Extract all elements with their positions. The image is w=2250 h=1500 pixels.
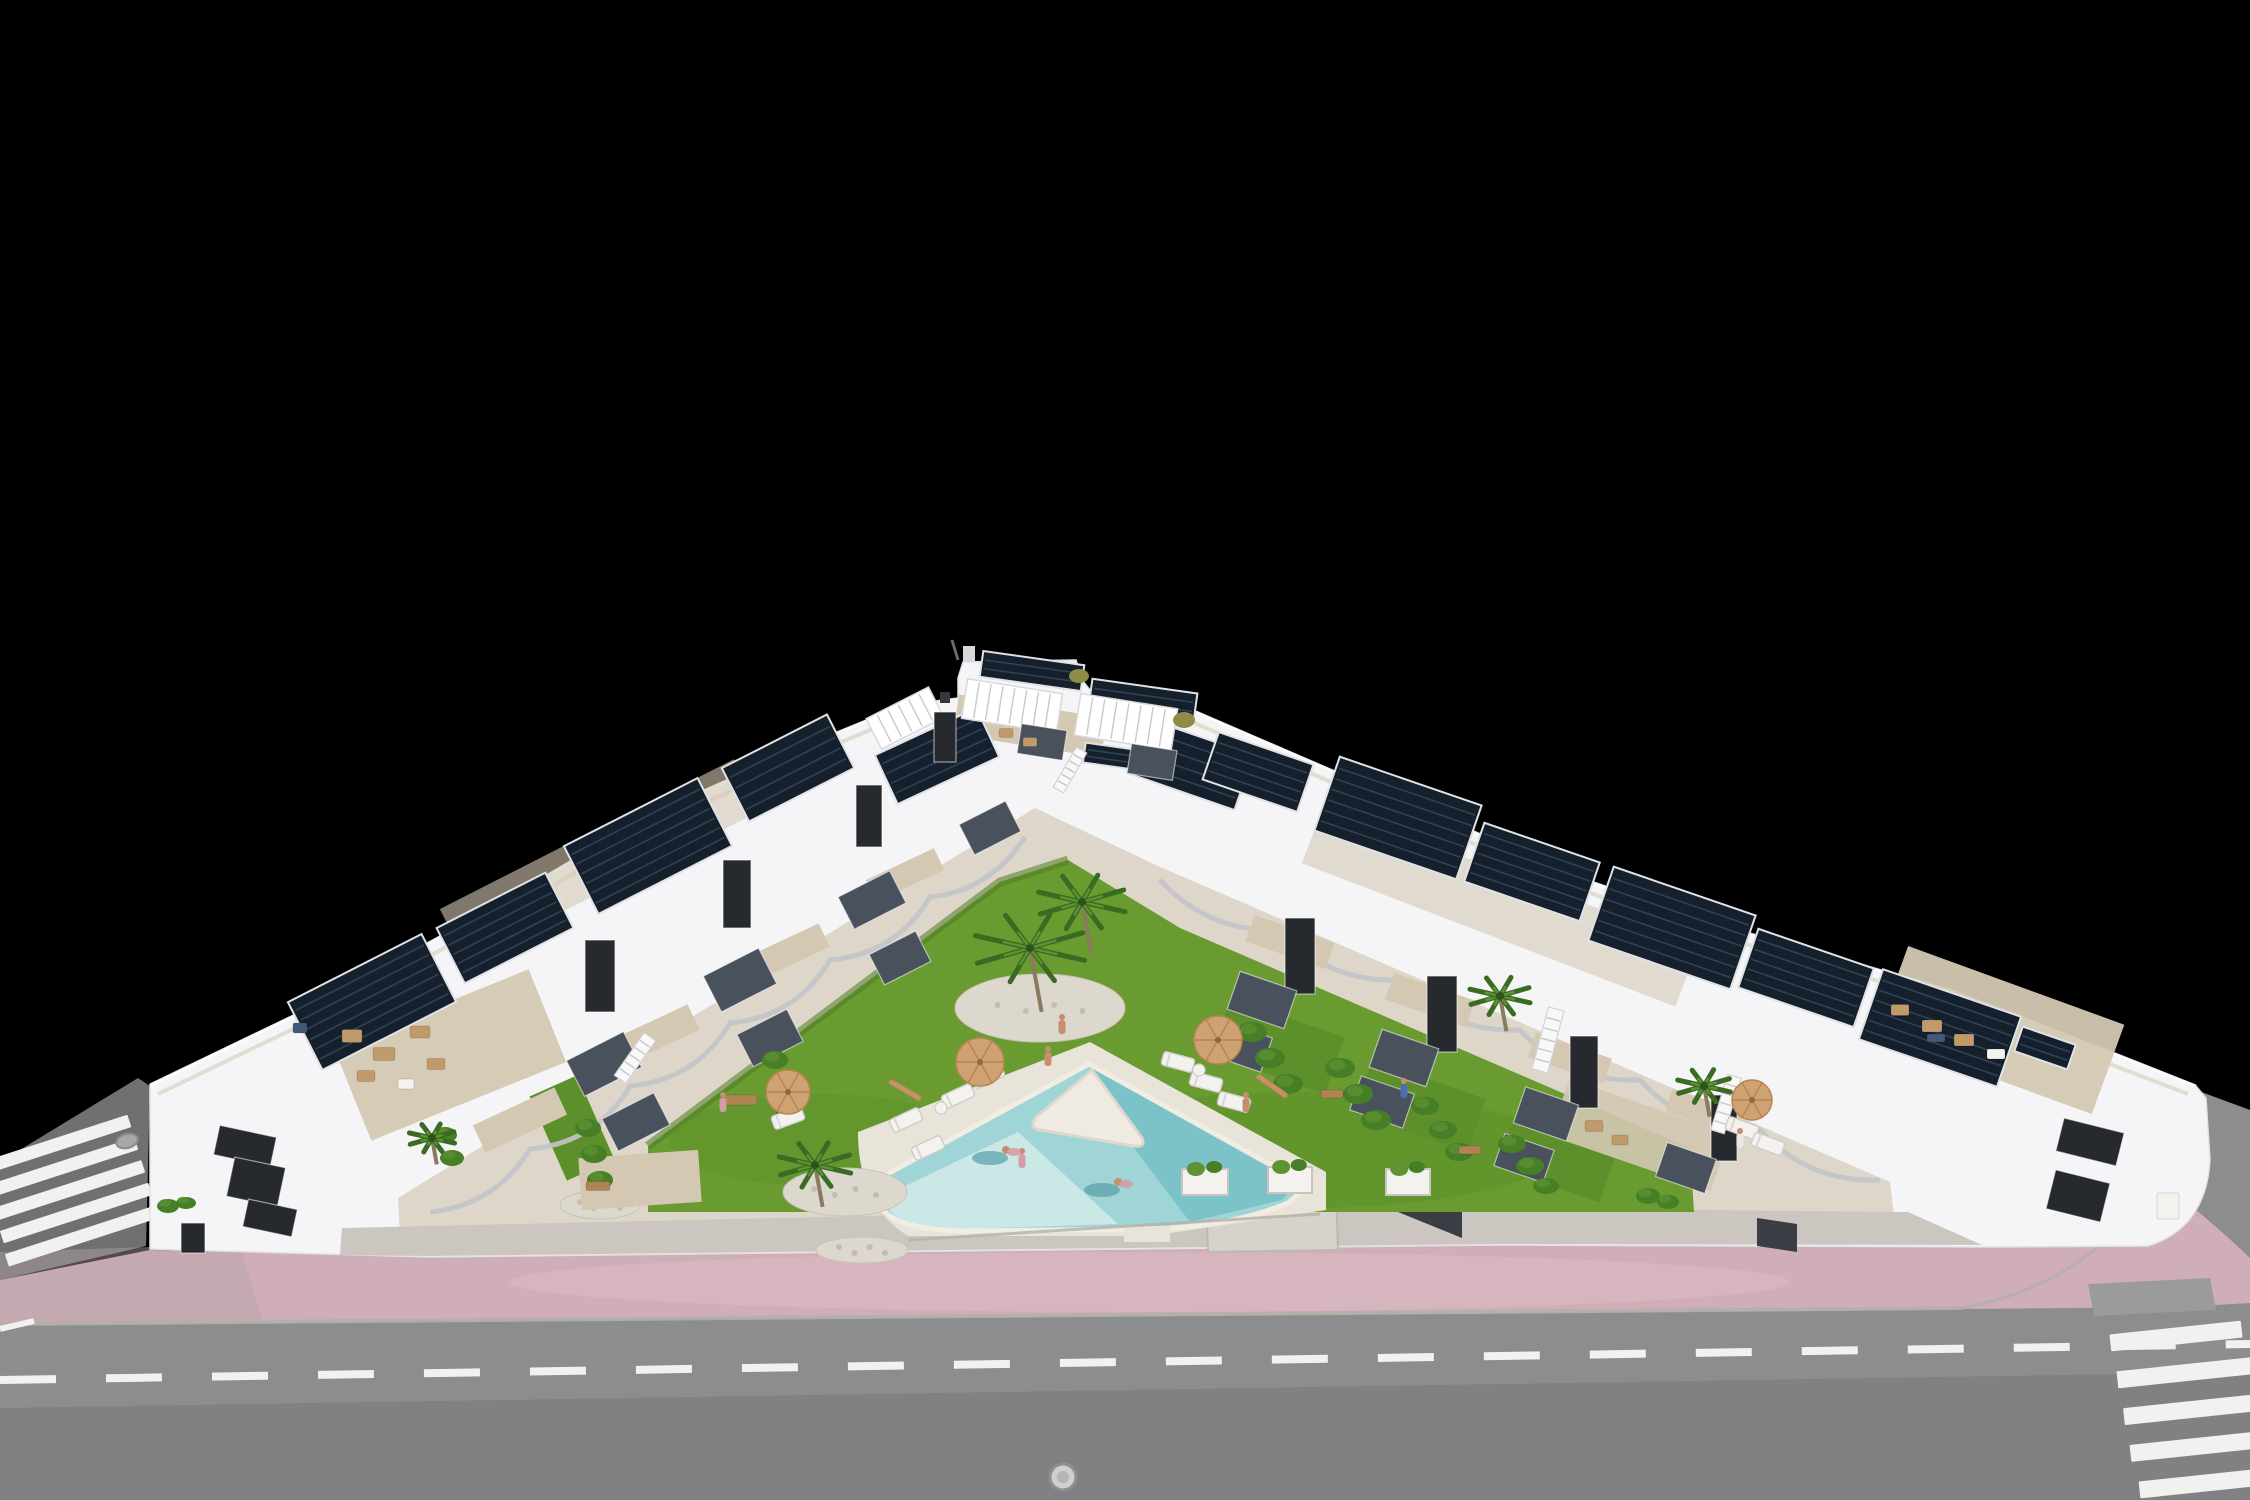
pebble (811, 1186, 817, 1192)
palm-crown (428, 1134, 436, 1142)
furniture-piece (427, 1059, 445, 1070)
window-dark (1285, 918, 1315, 994)
furniture-piece (1922, 1020, 1942, 1032)
pebble (836, 1244, 842, 1250)
palm-crown (1078, 898, 1086, 906)
person-head (1243, 1092, 1249, 1098)
hedge-highlight (1259, 1050, 1276, 1061)
umbrella-pole (1749, 1097, 1755, 1103)
umbrella-pole (1215, 1037, 1221, 1043)
person-body (1059, 1020, 1066, 1034)
pebble (1051, 1002, 1057, 1008)
hedge-highlight (1519, 1158, 1534, 1168)
roof-unit-box (940, 692, 950, 703)
furniture-piece (1612, 1135, 1628, 1145)
driveway-cut (2088, 1278, 2216, 1316)
window-dark (1570, 1036, 1598, 1108)
sidewalk-highlight (510, 1252, 1790, 1312)
umbrella-pole (785, 1089, 791, 1095)
pool-step (1124, 1226, 1170, 1242)
furniture-piece (1321, 1090, 1343, 1098)
pebble (1080, 1008, 1086, 1014)
furniture-piece (293, 1023, 307, 1033)
hedge-highlight (584, 1146, 598, 1156)
window-pane (1285, 918, 1315, 994)
hedge-highlight (1501, 1136, 1516, 1146)
palm-crown (1700, 1082, 1708, 1090)
swim-float (1007, 1148, 1021, 1156)
furniture-piece (2157, 1193, 2179, 1219)
olive-plant (1069, 669, 1089, 683)
rock-patch (783, 1168, 907, 1216)
hedge-highlight (590, 1172, 604, 1182)
furniture-piece (1891, 1005, 1909, 1016)
window-dark (934, 712, 956, 762)
planter-plant (1409, 1161, 1425, 1173)
pebble (882, 1250, 888, 1256)
palm-crown (1496, 992, 1504, 1000)
planter-plant (1272, 1160, 1290, 1174)
planter-plant (1291, 1159, 1307, 1171)
window-pane (1427, 976, 1457, 1052)
side-table (1193, 1064, 1205, 1076)
furniture-piece (410, 1026, 430, 1038)
hedge-highlight (765, 1052, 779, 1062)
hedge-highlight (178, 1197, 189, 1204)
side-table (935, 1102, 947, 1114)
hedge-highlight (1536, 1179, 1550, 1188)
window-glass (1127, 744, 1177, 781)
planter-plant (1187, 1162, 1205, 1176)
furniture-piece (1927, 1034, 1945, 1042)
hedge-highlight (1638, 1189, 1651, 1198)
umbrella-pole (977, 1059, 983, 1065)
furniture-piece (357, 1071, 375, 1082)
hedge-highlight (1347, 1086, 1364, 1097)
window-pane (1570, 1036, 1598, 1108)
window-pane (585, 940, 615, 1012)
scene (0, 0, 2250, 1500)
furniture-piece (999, 729, 1013, 738)
person-body (1737, 1134, 1744, 1148)
furniture-piece (1954, 1034, 1974, 1046)
planter-boxes (1182, 1159, 1430, 1195)
furniture-piece (373, 1048, 395, 1061)
hedge-highlight (1432, 1122, 1447, 1132)
window-dark (181, 1223, 205, 1253)
hedge-highlight (1329, 1060, 1346, 1071)
hedge-highlight (578, 1120, 592, 1130)
window-dark (585, 940, 615, 1012)
window-pane (934, 712, 956, 762)
pebble (995, 1002, 1001, 1008)
furniture-piece (1585, 1121, 1603, 1132)
pebble (832, 1192, 838, 1198)
pebble (873, 1192, 879, 1198)
window-pane (723, 860, 751, 928)
hedge-highlight (159, 1199, 171, 1207)
palm-crown (1026, 944, 1034, 952)
window-pane (856, 785, 882, 847)
pebble (851, 1250, 857, 1256)
pebble (867, 1244, 873, 1250)
window-pane (1127, 744, 1177, 781)
architectural-render (0, 0, 2250, 1500)
hedge-highlight (1277, 1076, 1294, 1087)
furniture-piece (342, 1030, 362, 1043)
planter-plant (1390, 1162, 1408, 1176)
swimmer-shadow (972, 1151, 1008, 1165)
person-head (1737, 1128, 1743, 1134)
olive-plant (1173, 712, 1195, 728)
person-head (1045, 1046, 1051, 1052)
hedge-highlight (1414, 1098, 1429, 1108)
person-body (1019, 1154, 1026, 1168)
person-head (720, 1092, 726, 1098)
pebble (852, 1186, 858, 1192)
window-dark (1427, 976, 1457, 1052)
person-body (720, 1098, 727, 1112)
person-body (1045, 1052, 1052, 1066)
window-dark (723, 860, 751, 928)
person-body (1243, 1098, 1250, 1112)
hedge-highlight (1659, 1195, 1671, 1203)
hedge-highlight (1365, 1112, 1382, 1123)
manhole-center (1057, 1471, 1069, 1483)
person-head (1059, 1014, 1065, 1020)
window-dark (856, 785, 882, 847)
roof-vent (963, 646, 975, 662)
furniture-piece (1987, 1049, 2005, 1059)
rock-patch (816, 1237, 908, 1263)
palm-crown (811, 1161, 819, 1169)
swim-float (1119, 1180, 1133, 1188)
furniture-piece (1459, 1146, 1481, 1154)
furniture-piece (1023, 738, 1037, 747)
furniture-piece (723, 1095, 757, 1105)
person-head (1401, 1078, 1407, 1084)
pebble (1023, 1008, 1029, 1014)
hedge-highlight (1241, 1024, 1258, 1035)
person-body (1401, 1084, 1408, 1098)
furniture-piece (586, 1182, 610, 1191)
window-pane (181, 1223, 205, 1253)
furniture-piece (398, 1079, 414, 1089)
swimmer-shadow (1084, 1183, 1120, 1197)
planter-plant (1206, 1161, 1222, 1173)
